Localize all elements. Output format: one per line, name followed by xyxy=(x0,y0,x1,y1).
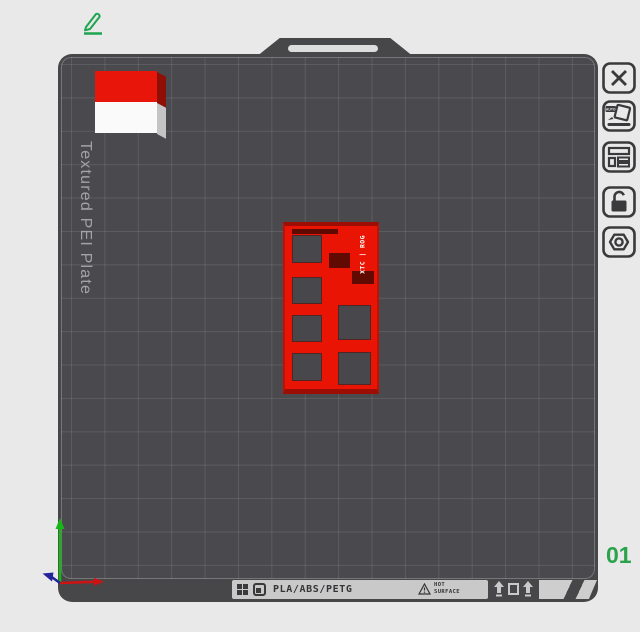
strip-diagonal-decal xyxy=(539,580,597,599)
model-cutout xyxy=(292,235,322,263)
nut-settings-button[interactable] xyxy=(602,226,636,258)
x-axis-arrow xyxy=(94,578,104,586)
hot-surface-warning: HOT SURFACE xyxy=(418,582,460,595)
warning-triangle-icon xyxy=(418,583,431,595)
plate-type-icon xyxy=(253,583,266,596)
square-marker-icon xyxy=(508,583,519,595)
model-cutout xyxy=(292,277,322,304)
model-top-slot xyxy=(292,229,338,234)
four-squares-icon xyxy=(237,584,248,595)
model-cutout xyxy=(292,353,322,381)
z-axis-arrow xyxy=(43,573,54,582)
cube-side-red xyxy=(157,72,166,108)
auto-orient-button[interactable]: AUTO xyxy=(602,100,636,132)
cube-side-white xyxy=(157,103,166,139)
plate-close-button[interactable] xyxy=(602,62,636,94)
model-cutout xyxy=(338,305,371,340)
corner-cube-object[interactable] xyxy=(95,71,157,133)
arrow-up-icon xyxy=(523,581,533,597)
cube-red-half xyxy=(95,71,157,102)
model-object[interactable]: XTC | ROG xyxy=(283,222,379,394)
plate-surface-label: Textured PEI Plate xyxy=(76,141,94,295)
model-cutout xyxy=(338,352,371,385)
plate-handle-slot xyxy=(288,45,378,52)
cube-white-half xyxy=(95,102,157,133)
auto-badge-label: AUTO xyxy=(606,108,616,112)
lock-unlocked-button[interactable] xyxy=(602,186,636,218)
axes-gizmo xyxy=(30,512,110,590)
model-engraved-text: XTC | ROG xyxy=(358,223,369,287)
corner-cube-side-face xyxy=(157,72,166,139)
y-axis-arrow xyxy=(56,518,65,529)
strip-arrow-markers xyxy=(494,581,538,598)
slicer-plate-view: Textured PEI Plate XTC | ROG PLA/ABS/PET… xyxy=(0,0,640,632)
warning-line2: SURFACE xyxy=(434,589,460,596)
plate-info-strip: PLA/ABS/PETG HOT SURFACE xyxy=(232,580,488,599)
plate-settings-button[interactable] xyxy=(602,141,636,173)
edit-plate-name-icon[interactable] xyxy=(78,6,106,36)
materials-label: PLA/ABS/PETG xyxy=(273,580,352,599)
plate-number-badge: 01 xyxy=(606,542,632,569)
model-recess xyxy=(329,253,350,268)
arrow-up-icon xyxy=(494,581,504,597)
model-cutout xyxy=(292,315,322,342)
